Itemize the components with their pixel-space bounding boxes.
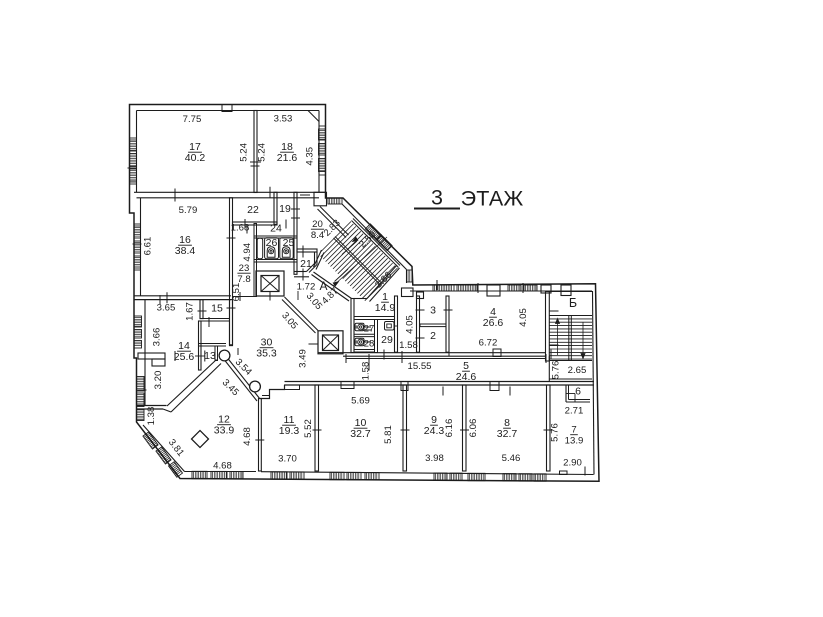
svg-text:4.68: 4.68: [242, 427, 253, 446]
svg-text:1.58: 1.58: [361, 362, 372, 381]
svg-text:24.3: 24.3: [424, 425, 445, 437]
svg-text:33.9: 33.9: [214, 425, 235, 437]
svg-text:26.6: 26.6: [483, 317, 504, 329]
svg-text:29: 29: [381, 334, 393, 346]
svg-text:2: 2: [430, 330, 436, 342]
svg-text:19: 19: [279, 203, 291, 215]
svg-text:25: 25: [283, 237, 295, 249]
svg-text:3.98: 3.98: [425, 453, 444, 464]
svg-text:27: 27: [364, 324, 375, 335]
svg-text:25.6: 25.6: [174, 351, 195, 363]
svg-text:4.35: 4.35: [305, 147, 316, 166]
svg-text:1.58: 1.58: [399, 340, 418, 351]
svg-text:3.20: 3.20: [153, 371, 164, 390]
svg-text:ЭТАЖ: ЭТАЖ: [461, 187, 524, 211]
svg-text:3.66: 3.66: [152, 328, 163, 347]
svg-text:5.46: 5.46: [502, 453, 521, 464]
svg-text:21: 21: [300, 258, 312, 270]
svg-text:1.68: 1.68: [231, 223, 250, 234]
svg-text:23: 23: [239, 263, 250, 274]
svg-text:4.05: 4.05: [405, 315, 416, 334]
svg-text:3.65: 3.65: [157, 303, 176, 314]
svg-text:6.06: 6.06: [468, 419, 479, 438]
svg-text:24.6: 24.6: [456, 371, 477, 383]
svg-text:35.3: 35.3: [256, 348, 277, 360]
svg-text:40.2: 40.2: [185, 152, 206, 164]
svg-text:6.61: 6.61: [143, 237, 154, 256]
svg-text:4.05: 4.05: [518, 308, 529, 327]
svg-text:21.6: 21.6: [277, 152, 298, 164]
svg-text:38.4: 38.4: [175, 245, 196, 257]
svg-text:22: 22: [247, 204, 259, 216]
svg-text:5.52: 5.52: [303, 419, 314, 438]
svg-text:13: 13: [204, 350, 216, 362]
svg-text:24: 24: [270, 223, 282, 235]
svg-text:1.38: 1.38: [146, 407, 157, 426]
svg-text:19.3: 19.3: [279, 425, 300, 437]
svg-text:1.67: 1.67: [185, 302, 196, 321]
svg-text:28: 28: [364, 339, 375, 350]
svg-text:5.76: 5.76: [551, 361, 562, 380]
svg-text:14.9: 14.9: [375, 302, 396, 314]
svg-text:32.7: 32.7: [350, 428, 371, 440]
svg-text:5.76: 5.76: [550, 423, 561, 442]
svg-text:3.49: 3.49: [298, 349, 309, 368]
svg-text:6: 6: [575, 386, 581, 398]
svg-text:6.72: 6.72: [479, 337, 498, 348]
svg-text:20: 20: [312, 219, 323, 230]
svg-text:26: 26: [266, 237, 278, 249]
svg-text:3: 3: [430, 305, 436, 317]
svg-text:15.55: 15.55: [407, 361, 431, 372]
svg-text:15: 15: [211, 303, 223, 315]
svg-text:3.70: 3.70: [278, 454, 297, 465]
svg-text:2.71: 2.71: [565, 406, 584, 417]
svg-text:3: 3: [431, 186, 443, 210]
svg-text:5.24: 5.24: [239, 142, 250, 161]
svg-text:6.51: 6.51: [231, 283, 242, 302]
svg-text:7: 7: [571, 425, 576, 436]
svg-text:13.9: 13.9: [565, 436, 584, 447]
svg-text:5.81: 5.81: [383, 425, 394, 444]
svg-text:7.75: 7.75: [183, 114, 202, 125]
svg-text:Б: Б: [569, 296, 577, 310]
svg-text:6.16: 6.16: [444, 419, 455, 438]
svg-text:5.69: 5.69: [351, 396, 370, 407]
svg-text:А: А: [319, 279, 327, 293]
svg-text:4.68: 4.68: [213, 461, 232, 472]
svg-text:2.65: 2.65: [568, 365, 587, 376]
svg-text:32.7: 32.7: [497, 428, 518, 440]
svg-text:4.94: 4.94: [242, 242, 253, 261]
svg-text:2.90: 2.90: [563, 458, 582, 469]
svg-text:5.79: 5.79: [179, 205, 198, 216]
svg-text:5.24: 5.24: [257, 142, 268, 161]
svg-text:3.53: 3.53: [274, 114, 293, 125]
